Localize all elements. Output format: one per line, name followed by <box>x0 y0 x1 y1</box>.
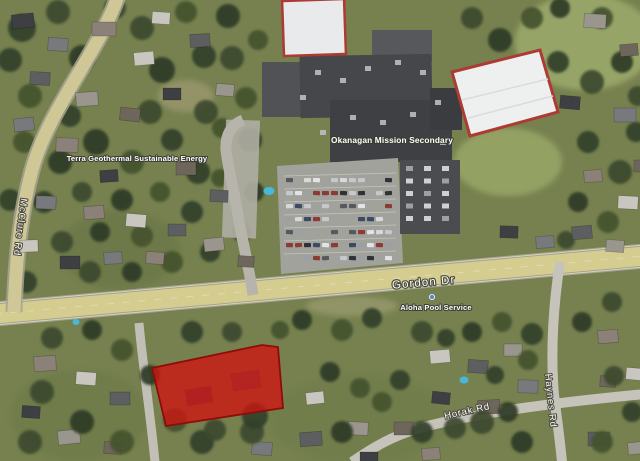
tree <box>18 430 42 454</box>
satellite-map-image: Okanagan Mission Secondary Terra Geother… <box>0 0 640 461</box>
house-roof <box>518 380 538 394</box>
tree <box>235 87 257 109</box>
portable-unit <box>424 216 431 221</box>
house-roof <box>133 51 154 66</box>
car <box>331 243 338 248</box>
car <box>358 256 365 261</box>
car <box>349 178 356 183</box>
portable-unit <box>442 216 449 221</box>
tree <box>111 189 133 211</box>
veg-patch <box>60 210 180 290</box>
house-roof <box>626 367 640 381</box>
map-canvas: Okanagan Mission Secondary Terra Geother… <box>0 0 640 461</box>
car <box>286 178 293 182</box>
house-roof <box>168 224 186 236</box>
car <box>376 230 383 235</box>
hvac-unit <box>350 115 356 120</box>
tree <box>30 380 54 404</box>
tree <box>331 421 353 443</box>
tree <box>18 84 42 108</box>
car <box>367 256 374 260</box>
house-roof <box>598 329 619 343</box>
car <box>358 230 365 234</box>
portable-unit <box>442 166 449 171</box>
tree <box>192 44 216 68</box>
car <box>385 230 392 235</box>
car <box>313 191 320 196</box>
house-roof <box>571 225 592 240</box>
house-roof <box>300 431 323 447</box>
house-roof <box>13 117 34 132</box>
sports-field <box>454 128 562 196</box>
house-roof <box>100 169 119 182</box>
portable-unit <box>424 204 431 209</box>
car <box>376 243 383 247</box>
car <box>313 256 320 261</box>
car <box>286 204 293 209</box>
tree <box>572 312 592 332</box>
tree <box>216 4 240 28</box>
car <box>286 230 293 235</box>
car <box>322 204 329 208</box>
hvac-unit <box>410 112 416 117</box>
house-roof <box>110 392 130 405</box>
tree <box>111 339 133 361</box>
car <box>358 217 365 221</box>
house-roof <box>500 226 518 239</box>
house-roof <box>125 213 146 228</box>
car <box>322 217 329 221</box>
house-roof <box>84 205 105 219</box>
hvac-unit <box>340 78 346 83</box>
car <box>286 191 293 195</box>
tree <box>204 419 226 441</box>
tree <box>547 51 569 73</box>
tree <box>248 30 268 50</box>
car <box>385 256 392 261</box>
tree <box>222 322 242 342</box>
car <box>367 217 374 222</box>
car <box>331 178 338 182</box>
tree <box>492 312 512 332</box>
car <box>295 243 302 248</box>
tree <box>462 322 482 342</box>
portable-buildings <box>400 160 460 234</box>
tree <box>110 430 134 454</box>
house-roof <box>216 83 235 97</box>
tree <box>602 292 622 312</box>
tree <box>488 28 512 52</box>
swimming-pool <box>264 187 275 195</box>
hvac-unit <box>315 70 321 75</box>
house-roof <box>618 195 639 209</box>
tree <box>51 231 73 253</box>
house-roof <box>634 160 640 172</box>
tree <box>83 129 109 155</box>
tree <box>194 100 218 124</box>
car <box>304 217 311 221</box>
car <box>376 191 383 196</box>
tree <box>390 370 410 390</box>
tree <box>79 261 101 283</box>
house-roof <box>163 88 181 100</box>
house-roof <box>104 252 123 265</box>
house-roof <box>22 405 41 418</box>
tree <box>511 431 533 453</box>
house-roof <box>504 344 522 356</box>
house-roof <box>584 13 607 28</box>
tree <box>181 201 203 223</box>
tree <box>70 410 94 434</box>
business-poi-dot <box>429 294 434 299</box>
car <box>322 243 329 248</box>
car <box>367 243 374 247</box>
hvac-unit <box>320 130 326 135</box>
tree <box>90 222 110 242</box>
tree <box>591 431 613 453</box>
tree <box>331 319 353 341</box>
label-aloha-pool: Aloha Pool Service <box>400 303 472 312</box>
house-roof <box>559 95 580 110</box>
label-terra-geothermal: Terra Geothermal Sustainable Energy <box>67 154 208 163</box>
house-roof <box>203 237 224 252</box>
tree <box>577 131 599 153</box>
house-roof <box>146 251 165 264</box>
car <box>349 243 356 247</box>
car <box>340 204 347 208</box>
car <box>304 204 311 208</box>
tree <box>362 308 382 328</box>
tree <box>131 225 153 247</box>
house-roof <box>394 422 414 435</box>
tree <box>46 0 70 24</box>
hvac-unit <box>365 66 371 71</box>
house-roof <box>11 13 34 29</box>
house-roof <box>119 107 140 122</box>
tree <box>411 321 433 343</box>
portable-unit <box>406 166 413 171</box>
tree <box>568 192 588 212</box>
hvac-unit <box>435 100 441 105</box>
car <box>349 191 356 196</box>
tree <box>150 182 170 202</box>
car <box>385 243 392 247</box>
house-roof <box>606 239 625 252</box>
tree <box>175 1 197 23</box>
house-roof <box>429 349 450 364</box>
tree <box>41 327 63 349</box>
house-roof <box>627 441 640 455</box>
portable-unit <box>406 216 413 221</box>
car <box>340 256 347 261</box>
house-roof <box>176 162 196 175</box>
house-roof <box>360 452 378 461</box>
car <box>358 243 365 247</box>
car <box>313 217 320 221</box>
house-roof <box>210 190 229 203</box>
tree <box>498 402 518 422</box>
car <box>385 204 392 208</box>
car <box>322 256 329 261</box>
tree <box>181 321 203 343</box>
house-roof <box>620 43 639 57</box>
label-school: Okanagan Mission Secondary <box>331 135 453 145</box>
house-roof <box>536 236 555 249</box>
house-roof <box>152 11 171 24</box>
portable-unit <box>424 191 431 196</box>
house-roof <box>60 256 80 269</box>
car <box>313 243 320 247</box>
car <box>295 217 302 221</box>
tree <box>521 7 543 29</box>
car <box>304 256 311 260</box>
house-roof <box>36 196 56 210</box>
house-roof <box>584 169 603 182</box>
house-roof <box>34 355 57 371</box>
car <box>376 217 383 222</box>
car <box>295 204 302 209</box>
house-roof <box>76 371 97 385</box>
car <box>349 230 356 235</box>
house-roof <box>468 359 489 373</box>
car <box>286 243 293 247</box>
car <box>295 191 302 195</box>
tree <box>82 320 102 340</box>
house-roof <box>76 91 99 107</box>
house-roof <box>422 447 441 460</box>
tree <box>437 329 455 347</box>
tree <box>220 46 244 70</box>
car <box>304 178 311 182</box>
car <box>358 191 365 195</box>
car <box>358 178 365 183</box>
tree <box>597 211 619 233</box>
tree <box>161 129 183 151</box>
car <box>385 178 392 183</box>
hvac-unit <box>300 95 306 100</box>
house-roof <box>56 138 78 153</box>
tree <box>461 7 483 29</box>
tree <box>608 160 632 184</box>
gym-building <box>282 0 346 56</box>
portable-unit <box>424 179 431 184</box>
tree <box>350 378 370 398</box>
car <box>331 191 338 195</box>
tree <box>411 421 433 443</box>
hvac-unit <box>380 120 386 125</box>
tree <box>580 70 604 94</box>
car <box>331 230 338 234</box>
car <box>385 191 392 196</box>
car <box>286 217 293 221</box>
tree <box>372 392 392 412</box>
portable-unit <box>442 179 449 184</box>
house-roof <box>431 391 450 405</box>
portable-unit <box>424 166 431 171</box>
swimming-pool <box>460 377 469 384</box>
swimming-pool <box>73 319 80 325</box>
car <box>367 230 374 235</box>
hvac-unit <box>395 60 401 65</box>
car <box>349 204 356 208</box>
tree <box>72 182 92 202</box>
house-roof <box>238 255 255 267</box>
tree <box>486 366 504 384</box>
dirt-patch <box>306 296 398 316</box>
car <box>340 178 347 182</box>
tree <box>122 262 142 282</box>
tree <box>271 321 289 339</box>
tree <box>521 323 543 345</box>
car <box>358 204 365 208</box>
portable-unit <box>406 191 413 196</box>
house-roof <box>30 71 51 85</box>
house-roof <box>305 391 324 405</box>
car <box>313 178 320 183</box>
portable-unit <box>406 204 413 209</box>
car <box>340 191 347 196</box>
portable-unit <box>406 179 413 184</box>
tree <box>604 366 624 386</box>
tree <box>138 100 162 124</box>
tree <box>320 362 340 382</box>
tree <box>518 350 538 370</box>
house-roof <box>190 33 211 47</box>
house-roof <box>92 22 116 36</box>
car <box>349 256 356 261</box>
car <box>304 243 311 247</box>
tree <box>130 16 154 40</box>
tree <box>292 310 312 330</box>
car <box>295 230 302 235</box>
portable-unit <box>442 204 449 209</box>
car <box>322 191 329 195</box>
portable-unit <box>442 191 449 196</box>
house-roof <box>48 37 69 51</box>
hvac-unit <box>420 70 426 75</box>
house-roof <box>614 108 636 122</box>
